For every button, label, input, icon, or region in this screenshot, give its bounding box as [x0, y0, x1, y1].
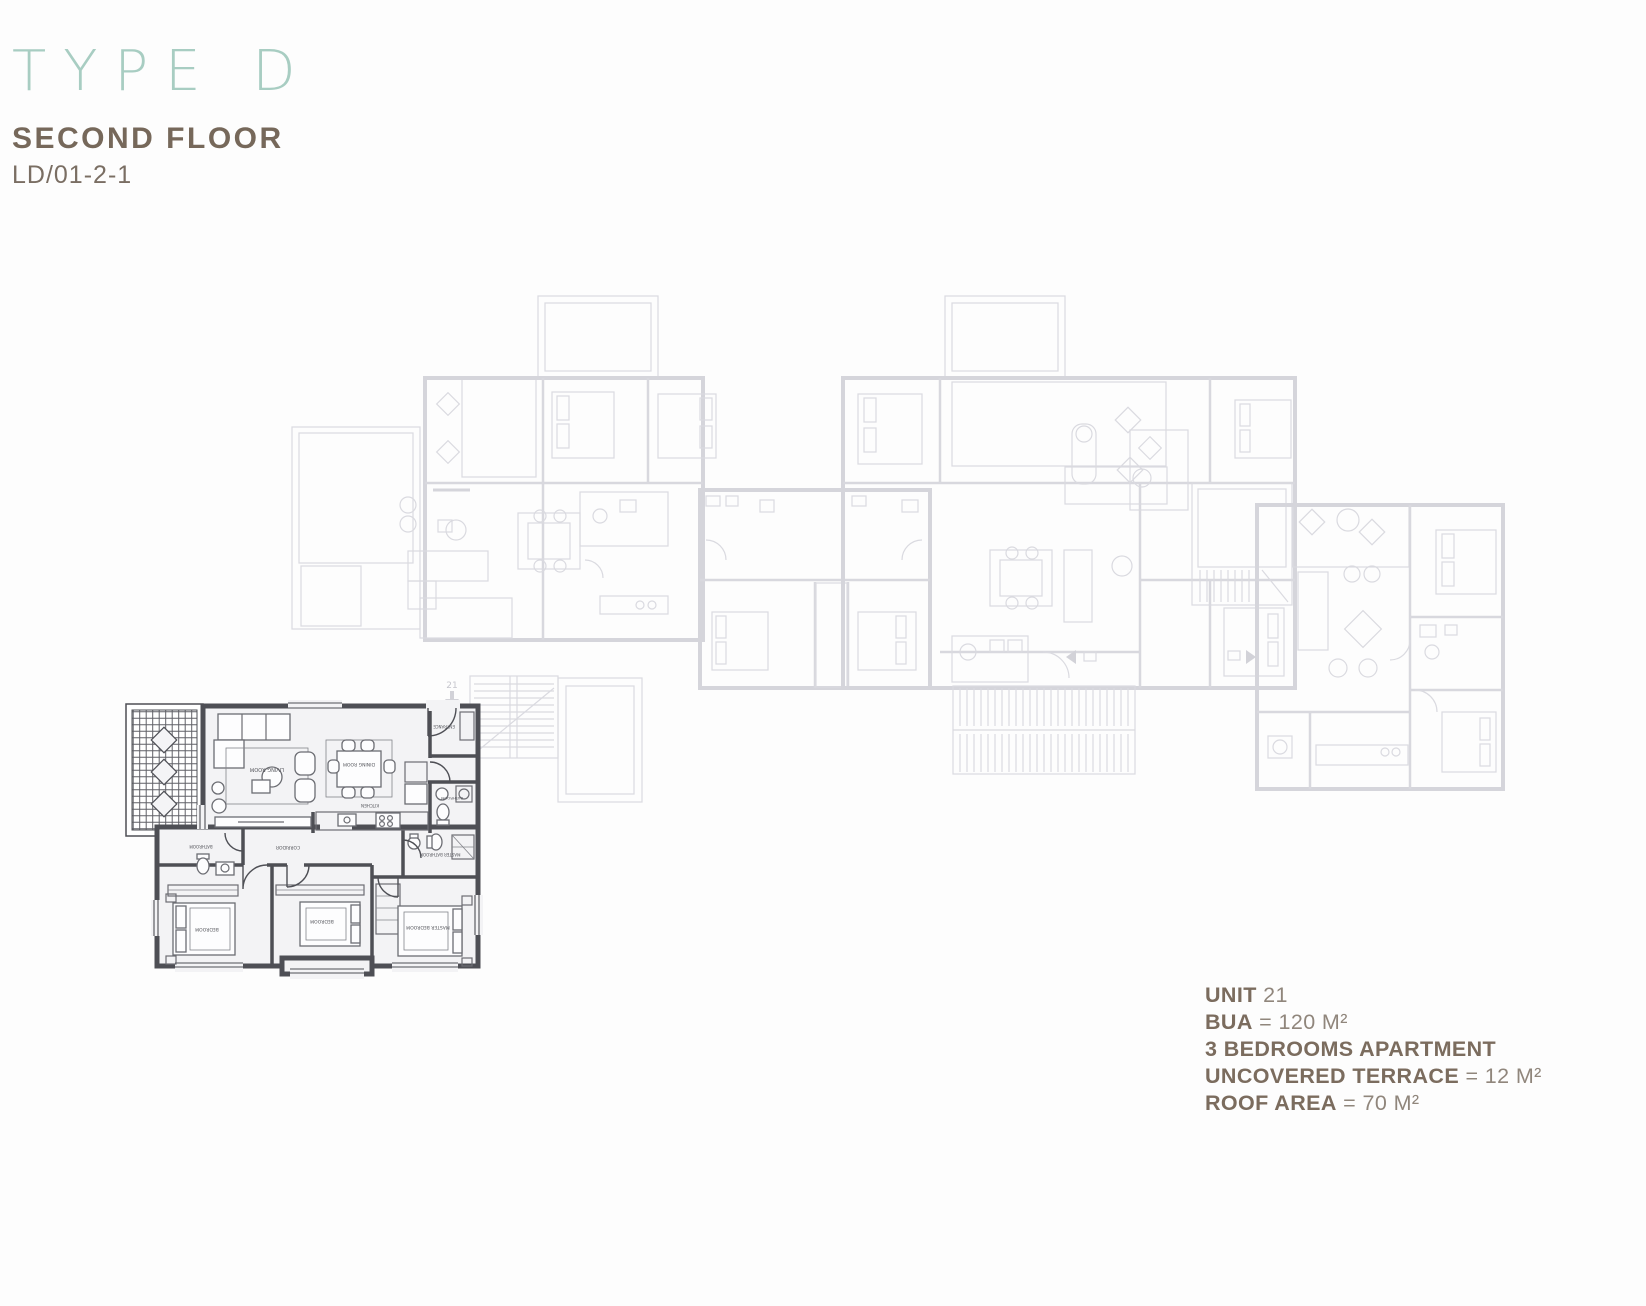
unit-info-line: BUA = 120 M²: [1205, 1009, 1625, 1036]
floorplan-page: TYPE D SECOND FLOOR LD/01-2-1: [0, 0, 1646, 1306]
label-kitchen: KITCHEN: [361, 803, 379, 808]
label-bathroom-1: BATHROOM: [189, 844, 213, 849]
label-master-bedroom: MASTER BEDROOM: [406, 924, 450, 930]
bedrooms-label: 3 BEDROOMS APARTMENT: [1205, 1037, 1496, 1061]
roof-label: ROOF AREA: [1205, 1091, 1337, 1115]
unit-info-line: UNCOVERED TERRACE = 12 M²: [1205, 1063, 1625, 1090]
label-dining-room: DINING ROOM: [343, 761, 375, 767]
label-corridor: CORRIDOR: [276, 844, 300, 850]
unit-label: UNIT: [1205, 983, 1257, 1007]
label-master-bathroom: MASTER BATHROOM: [419, 852, 460, 857]
label-bedroom-1: BEDROOM: [195, 926, 219, 932]
bua-label: BUA: [1205, 1010, 1253, 1034]
unit-number-marker: 21: [446, 681, 457, 691]
terrace-label: UNCOVERED TERRACE: [1205, 1064, 1459, 1088]
unit-value: 21: [1257, 983, 1288, 1007]
label-entrance: ENTRANCE: [433, 724, 455, 729]
label-bathroom-2: BATHROOM: [441, 796, 463, 801]
master-bedroom-furniture: [398, 896, 472, 966]
roof-value: = 70 M²: [1337, 1091, 1420, 1115]
unit-info-panel: UNIT 21 BUA = 120 M² 3 BEDROOMS APARTMEN…: [1205, 982, 1625, 1117]
label-bedroom-2: BEDROOM: [310, 918, 334, 924]
highlighted-unit-plan: LIVING ROOM DINING ROOM KITCHEN ENTRANCE…: [126, 700, 483, 979]
bua-value: = 120 M²: [1253, 1010, 1348, 1034]
unit-info-line: UNIT 21: [1205, 982, 1625, 1009]
label-living-room: LIVING ROOM: [250, 766, 284, 772]
bedroom-2-furniture: [300, 902, 360, 946]
unit-info-line: 3 BEDROOMS APARTMENT: [1205, 1036, 1625, 1063]
terrace-value: = 12 M²: [1459, 1064, 1542, 1088]
unit-info-line: ROOF AREA = 70 M²: [1205, 1090, 1625, 1117]
